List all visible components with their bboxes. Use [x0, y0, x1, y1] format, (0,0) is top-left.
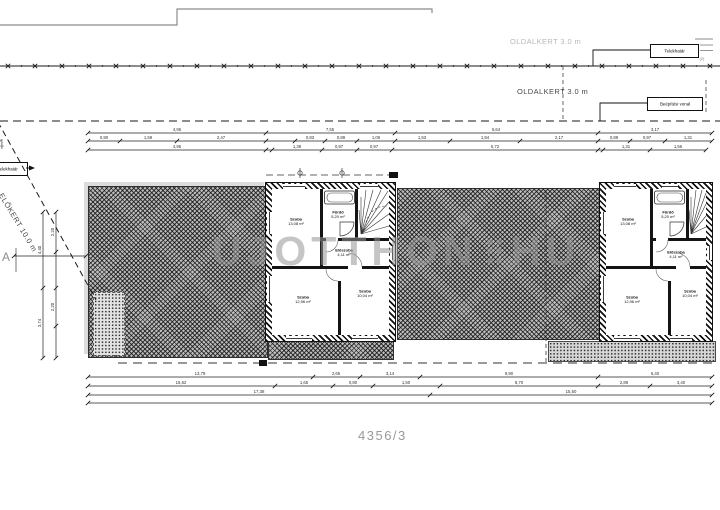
watermark-text: UJOTTHON — [212, 228, 478, 275]
svg-text:9,90: 9,90 — [505, 371, 514, 376]
svg-text:17,38: 17,38 — [254, 389, 265, 394]
svg-text:0,80: 0,80 — [349, 380, 358, 385]
svg-text:1,58: 1,58 — [144, 135, 153, 140]
svg-text:2,89: 2,89 — [620, 380, 629, 385]
svg-text:1,06: 1,06 — [372, 135, 381, 140]
svg-text:1,94: 1,94 — [481, 135, 490, 140]
svg-text:1,31: 1,31 — [622, 144, 631, 149]
svg-text:1,39: 1,39 — [293, 144, 302, 149]
svg-text:8,70: 8,70 — [515, 380, 524, 385]
leader-arrowhead — [29, 166, 35, 171]
svg-text:6,40: 6,40 — [651, 371, 660, 376]
svg-text:13,79: 13,79 — [195, 371, 206, 376]
svg-text:5,72: 5,72 — [491, 144, 500, 149]
svg-text:3,17: 3,17 — [651, 127, 660, 132]
watermark-dots-icon — [487, 239, 503, 264]
svg-text:0,89: 0,89 — [337, 135, 346, 140]
svg-text:4,95: 4,95 — [173, 144, 182, 149]
svg-text:1,56: 1,56 — [674, 144, 683, 149]
marker-block — [259, 360, 267, 366]
svg-text:0,90: 0,90 — [100, 135, 109, 140]
watermark: UJOTTHON HU — [212, 227, 580, 275]
svg-text:4,95: 4,95 — [173, 127, 182, 132]
survey-markers — [298, 168, 344, 178]
svg-text:2,47: 2,47 — [217, 135, 226, 140]
svg-text:1,50: 1,50 — [402, 380, 411, 385]
svg-text:15,62: 15,62 — [176, 380, 187, 385]
svg-text:0,97: 0,97 — [370, 144, 379, 149]
svg-text:2,65: 2,65 — [332, 371, 341, 376]
svg-text:0,97: 0,97 — [643, 135, 652, 140]
leader-building-line — [600, 103, 647, 121]
svg-text:3,14: 3,14 — [386, 371, 395, 376]
svg-text:1,53: 1,53 — [418, 135, 427, 140]
front-boundary-dashed — [0, 122, 96, 300]
leader-boundary — [593, 50, 650, 66]
svg-text:2,20: 2,20 — [50, 227, 55, 236]
svg-text:1,31: 1,31 — [684, 135, 693, 140]
neighbor-outline — [0, 9, 432, 25]
svg-text:4,40: 4,40 — [37, 245, 42, 254]
bathtub — [325, 191, 685, 204]
svg-text:3,74: 3,74 — [37, 318, 42, 327]
svg-text:2,17: 2,17 — [555, 135, 564, 140]
svg-text:0,97: 0,97 — [335, 144, 344, 149]
svg-text:0,89: 0,89 — [610, 135, 619, 140]
svg-text:5,64: 5,64 — [492, 127, 501, 132]
svg-text:3,40: 3,40 — [677, 380, 686, 385]
site-plan-drawing: 4,957,555,643,170,901,582,470,830,891,06… — [0, 0, 720, 510]
svg-text:2,20: 2,20 — [50, 302, 55, 311]
svg-text:0,83: 0,83 — [306, 135, 315, 140]
watermark-tld: HU — [511, 228, 580, 275]
svg-text:15,50: 15,50 — [566, 389, 577, 394]
svg-text:1,65: 1,65 — [300, 380, 309, 385]
stair-right — [689, 190, 706, 234]
edge-dashes — [695, 39, 713, 51]
marker-block — [389, 172, 398, 178]
svg-text:7,55: 7,55 — [326, 127, 335, 132]
